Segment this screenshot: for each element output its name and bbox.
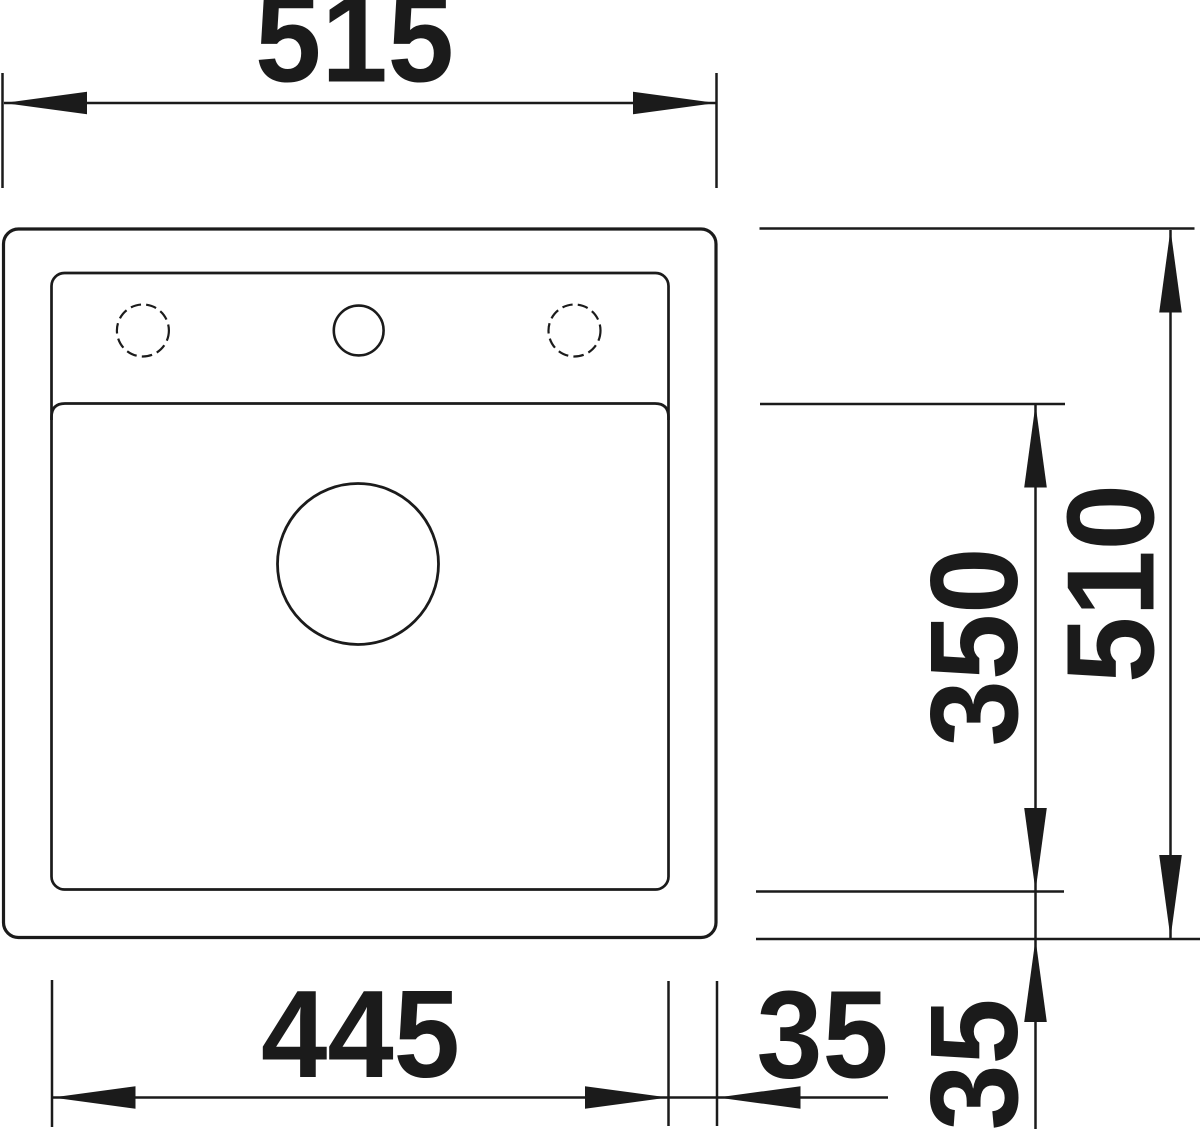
svg-text:445: 445 (261, 966, 460, 1104)
svg-text:515: 515 (255, 0, 454, 109)
svg-text:510: 510 (1043, 484, 1181, 683)
svg-text:35: 35 (757, 967, 889, 1105)
svg-text:35: 35 (906, 999, 1044, 1131)
svg-text:350: 350 (906, 548, 1044, 747)
